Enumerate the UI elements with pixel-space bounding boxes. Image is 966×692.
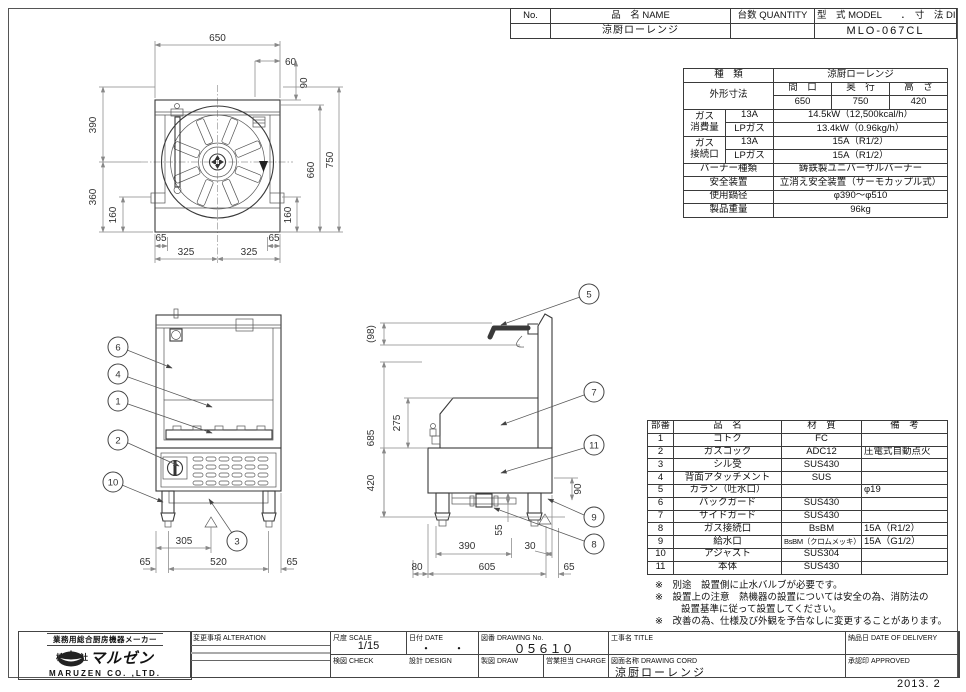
dim-65-plan-left: 65	[155, 233, 167, 244]
balloon-5: 5	[501, 284, 599, 325]
table-row: 5カラン（吐水口）φ19	[648, 484, 948, 497]
date-value: ・ ・	[407, 640, 478, 655]
plan-view: 650 60 90 390 360 160 160 660 750	[83, 25, 368, 270]
part-no: 6	[648, 497, 674, 510]
charge-label: 営業担当 CHARGE	[546, 658, 606, 665]
delivery-label: 納品日 DATE OF DELIVERY	[848, 635, 937, 642]
faucet-side	[490, 324, 538, 347]
balloon-9: 9	[548, 499, 604, 527]
scale-cell: 尺度 SCALE 1/15	[331, 632, 407, 655]
svg-text:2: 2	[115, 436, 120, 447]
part-name: 給水口	[674, 536, 782, 549]
part-material: BsBM	[782, 523, 862, 536]
parts-h-name: 品 名	[674, 421, 782, 434]
gas-inlet-plan	[253, 117, 265, 127]
part-note: φ19	[862, 484, 948, 497]
part-note: 圧電式自動点火	[862, 446, 948, 459]
spec-pot-label: 使用鍋径	[684, 190, 774, 204]
approved-label: 承認印 APPROVED	[848, 658, 910, 665]
dim-750: 750	[325, 151, 336, 168]
alteration-cell: 変更事項 ALTERATION	[191, 632, 331, 677]
spec-connection-lpg: 15A（R1/2）	[774, 150, 948, 164]
dim-650: 650	[209, 33, 226, 44]
header-model-value: MLO-067CL	[815, 24, 957, 39]
part-no: 9	[648, 536, 674, 549]
balloon-6: 6	[108, 337, 172, 368]
parts-h-no: 部番	[648, 421, 674, 434]
datum-marker	[205, 517, 217, 527]
table-row: 8ガス接続口BsBM15A（R1/2）	[648, 523, 948, 536]
part-name: ガス接続口	[674, 523, 782, 536]
dim-325-right: 325	[241, 247, 258, 258]
spec-gas-connection-label: ガス接続口	[684, 136, 726, 163]
dim-390-side: 390	[459, 541, 476, 552]
part-material	[782, 484, 862, 497]
balloon-10: 10	[103, 472, 163, 502]
svg-text:10: 10	[108, 478, 119, 489]
spec-pot-value: φ390～φ510	[774, 190, 948, 204]
part-material: SUS430	[782, 561, 862, 574]
spec-burner-label: バーナー種類	[684, 163, 774, 177]
faucet-arm-plan	[175, 117, 180, 187]
draw-label: 製図 DRAW	[481, 658, 518, 665]
spec-conn-lpg-label: LPガス	[726, 150, 774, 164]
spec-conn-13a-label: 13A	[726, 136, 774, 150]
dim-685: 685	[366, 429, 377, 446]
company-box: 業務用総合厨房機器メーカー 株式会社 マルゼン MARUZEN CO. ,LTD…	[18, 631, 192, 680]
part-material: SUS430	[782, 510, 862, 523]
table-row: 3シル受SUS430	[648, 459, 948, 472]
parts-h-mat: 材 質	[782, 421, 862, 434]
part-note	[862, 459, 948, 472]
part-no: 8	[648, 523, 674, 536]
spec-table: 種 類 涼厨ローレンジ 外形寸法 間 口 奥 行 高 さ 650 750 420…	[683, 68, 948, 218]
alteration-rule	[191, 660, 330, 661]
header-qty-label: 台数 QUANTITY	[731, 9, 815, 24]
note-line: ※ 改善の為、仕様及び外観を予告なしに変更することがあります。	[655, 616, 955, 628]
design-label: 設計 DESIGN	[409, 658, 452, 665]
note-line: ※ 別途 設置側に止水バルブが必要です。	[655, 580, 955, 592]
part-material: SUS304	[782, 548, 862, 561]
spec-safety-value: 立消え安全装置（サーモカップル式）	[774, 177, 948, 191]
part-no: 7	[648, 510, 674, 523]
approved-cell: 承認印 APPROVED	[846, 655, 959, 677]
dim-360: 360	[88, 188, 99, 205]
part-no: 3	[648, 459, 674, 472]
part-no: 4	[648, 472, 674, 485]
spec-outline-label: 外形寸法	[684, 82, 774, 109]
part-name: 背面アタッチメント	[674, 472, 782, 485]
spec-width-value: 650	[774, 96, 832, 110]
dim-65-side: 65	[563, 562, 575, 573]
check-cell: 検図 CHECK	[331, 655, 407, 677]
svg-text:8: 8	[591, 540, 596, 551]
table-row: 10アジャストSUS304	[648, 548, 948, 561]
dim-65-front-left: 65	[139, 557, 151, 568]
spec-13a-label: 13A	[726, 109, 774, 123]
spec-height-value: 420	[890, 96, 948, 110]
part-no: 5	[648, 484, 674, 497]
drawing-cord-value: 涼厨ローレンジ	[615, 664, 845, 677]
dim-65-plan-right: 65	[268, 233, 280, 244]
spec-width-label: 間 口	[774, 82, 832, 96]
part-no: 11	[648, 561, 674, 574]
alteration-label: 変更事項 ALTERATION	[193, 635, 266, 642]
spec-gas-connection-label-2: 接続口	[690, 149, 719, 160]
parts-table: 部番 品 名 材 質 備 考 1ゴトクFC 2ガスコックADC12圧電式自動点火…	[647, 420, 948, 575]
date-stamp: 2013. 2	[897, 678, 941, 690]
backguard-side	[538, 314, 552, 448]
legs-front	[161, 491, 276, 527]
side-view: (98) 685 275 420 90 55 390 30	[360, 278, 645, 588]
svg-text:9: 9	[591, 513, 596, 524]
dim-305: 305	[176, 536, 193, 547]
part-name: カラン（吐水口）	[674, 484, 782, 497]
louver-vents	[193, 457, 268, 485]
table-row: 6バックガードSUS430	[648, 497, 948, 510]
title-block: 変更事項 ALTERATION 尺度 SCALE 1/15 日付 DATE ・ …	[190, 631, 960, 678]
header-no-value	[511, 24, 551, 39]
part-name: 本体	[674, 561, 782, 574]
part-no: 1	[648, 433, 674, 446]
drawing-no-cell: 図番 DRAWING No. ０５６１０	[479, 632, 609, 655]
note-line: 設置基準に従って設置してください。	[655, 604, 955, 616]
table-row: 9給水口BsBM（クロムメッキ）15A（G1/2）	[648, 536, 948, 549]
table-row: 1ゴトクFC	[648, 433, 948, 446]
dim-605: 605	[479, 562, 496, 573]
parts-h-note: 備 考	[862, 421, 948, 434]
spec-lpg-label: LPガス	[726, 123, 774, 137]
drawing-sheet: No. 品 名 NAME 台数 QUANTITY 型 式 MODEL ． 寸 法…	[0, 0, 966, 692]
dim-520: 520	[210, 557, 227, 568]
dim-420: 420	[366, 474, 377, 491]
part-material: BsBM（クロムメッキ）	[782, 536, 862, 549]
part-note: 15A（G1/2）	[862, 536, 948, 549]
part-name: アジャスト	[674, 548, 782, 561]
dim-160-left: 160	[108, 206, 119, 223]
alteration-rule	[191, 645, 330, 646]
note-line: ※ 設置上の注意 熱機器の設置については安全の為、消防法の	[655, 592, 955, 604]
date-cell: 日付 DATE ・ ・	[407, 632, 479, 655]
spec-connection-13a: 15A（R1/2）	[774, 136, 948, 150]
svg-text:11: 11	[589, 441, 599, 452]
check-label: 検図 CHECK	[333, 658, 373, 665]
spec-gas-consumption-label-2: 消費量	[690, 122, 719, 133]
part-note	[862, 548, 948, 561]
dim-65-front-right: 65	[286, 557, 298, 568]
design-cell: 設計 DESIGN	[407, 655, 479, 677]
company-brand: マルゼン	[90, 647, 154, 668]
maruzen-logo-icon	[56, 649, 86, 667]
spec-kind-label: 種 類	[684, 69, 774, 83]
svg-text:5: 5	[586, 290, 591, 301]
drawing-cord-cell: 図面名称 DRAWING CORD 涼厨ローレンジ	[609, 655, 846, 677]
header-no-label: No.	[511, 9, 551, 24]
part-name: バックガード	[674, 497, 782, 510]
svg-text:6: 6	[115, 343, 120, 354]
title-cell: 工事名 TITLE	[609, 632, 846, 655]
part-no: 2	[648, 446, 674, 459]
water-marker	[259, 161, 268, 172]
part-note	[862, 497, 948, 510]
draw-cell: 製図 DRAW	[479, 655, 544, 677]
svg-text:7: 7	[591, 388, 596, 399]
spec-weight-label: 製品重量	[684, 204, 774, 218]
dim-55: 55	[494, 524, 505, 536]
header-table: No. 品 名 NAME 台数 QUANTITY 型 式 MODEL ． 寸 法…	[510, 8, 957, 39]
header-model-dim-label: 型 式 MODEL ． 寸 法 DIMENSION	[815, 9, 957, 24]
part-no: 10	[648, 548, 674, 561]
table-row: 7サイドガードSUS430	[648, 510, 948, 523]
dim-390: 390	[88, 116, 99, 133]
part-material: SUS430	[782, 497, 862, 510]
scale-value: 1/15	[331, 640, 406, 652]
spec-weight-value: 96kg	[774, 204, 948, 218]
dim-275: 275	[392, 414, 403, 431]
dim-98: (98)	[366, 325, 377, 343]
svg-text:3: 3	[234, 537, 239, 548]
gas-piping	[452, 493, 516, 507]
notes: ※ 別途 設置側に止水バルブが必要です。 ※ 設置上の注意 熱機器の設置について…	[655, 580, 955, 629]
part-material: ADC12	[782, 446, 862, 459]
company-name-en: MARUZEN CO. ,LTD.	[49, 669, 161, 678]
part-note: 15A（R1/2）	[862, 523, 948, 536]
part-name: シル受	[674, 459, 782, 472]
charge-cell: 営業担当 CHARGE	[544, 655, 609, 677]
dim-80: 80	[411, 562, 423, 573]
part-material: FC	[782, 433, 862, 446]
dim-660: 660	[306, 161, 317, 178]
spec-consumption-lpg: 13.4kW（0.96kg/h）	[774, 123, 948, 137]
spec-burner-value: 鋳鉄製ユニバーサルバーナー	[774, 163, 948, 177]
dim-160-right: 160	[283, 206, 294, 223]
gotoku	[166, 426, 272, 439]
header-name-value: 涼厨ローレンジ	[551, 24, 731, 39]
dim-90-side: 90	[573, 483, 584, 495]
part-name: ゴトク	[674, 433, 782, 446]
svg-text:1: 1	[115, 397, 120, 408]
spec-gas-connection-label-1: ガス	[695, 138, 714, 149]
header-qty-value	[731, 24, 815, 39]
part-material: SUS	[782, 472, 862, 485]
spec-kind-value: 涼厨ローレンジ	[774, 69, 948, 83]
spec-depth-value: 750	[832, 96, 890, 110]
balloon-3: 3	[209, 499, 247, 551]
balloon-1: 1	[108, 391, 212, 433]
spec-depth-label: 奥 行	[832, 82, 890, 96]
part-name: サイドガード	[674, 510, 782, 523]
alteration-rule-thick	[191, 652, 330, 654]
spec-consumption-13a: 14.5kW（12,500kcal/h）	[774, 109, 948, 123]
spec-safety-label: 安全装置	[684, 177, 774, 191]
dim-325-left: 325	[178, 247, 195, 258]
table-row: 4背面アタッチメントSUS	[648, 472, 948, 485]
part-name: ガスコック	[674, 446, 782, 459]
company-tagline: 業務用総合厨房機器メーカー	[47, 633, 163, 646]
part-note	[862, 433, 948, 446]
part-note	[862, 510, 948, 523]
hood-side	[440, 398, 538, 448]
delivery-cell: 納品日 DATE OF DELIVERY	[846, 632, 959, 655]
part-material: SUS430	[782, 459, 862, 472]
spec-height-label: 高 さ	[890, 82, 948, 96]
part-note	[862, 472, 948, 485]
svg-text:4: 4	[115, 370, 120, 381]
dim-30: 30	[524, 541, 536, 552]
spec-gas-consumption-label: ガス消費量	[684, 109, 726, 136]
dim-60: 60	[285, 57, 297, 68]
table-row: 2ガスコックADC12圧電式自動点火	[648, 446, 948, 459]
front-view: 305 65 520 65 6 4 1 2 10	[93, 281, 323, 581]
table-row: 11本体SUS430	[648, 561, 948, 574]
drawing-no-value: ０５６１０	[479, 640, 608, 655]
header-name-label: 品 名 NAME	[551, 9, 731, 24]
part-note	[862, 561, 948, 574]
spec-gas-consumption-label-1: ガス	[695, 111, 714, 122]
body-side	[428, 448, 552, 493]
title-label: 工事名 TITLE	[611, 635, 653, 642]
